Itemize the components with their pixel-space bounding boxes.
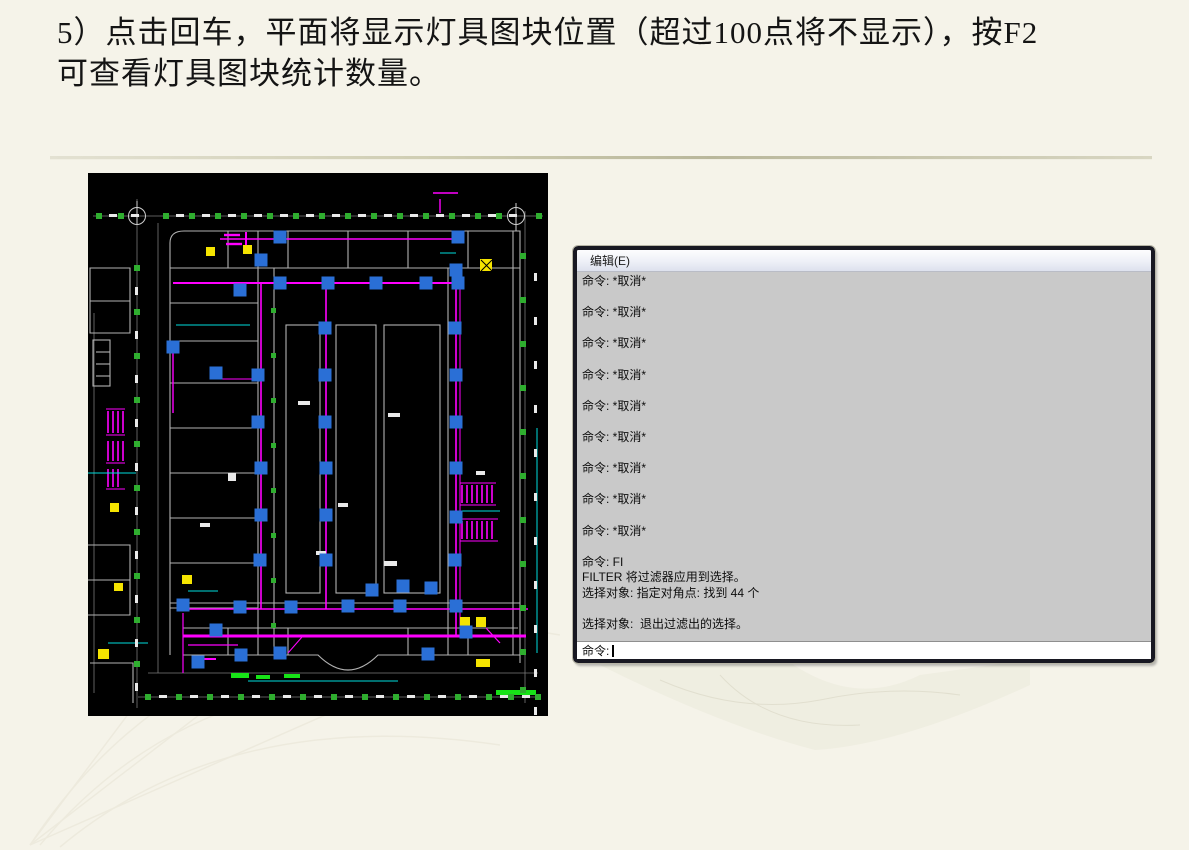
grid-tick bbox=[238, 694, 244, 700]
lamp-block bbox=[192, 656, 205, 669]
grid-tick bbox=[362, 694, 368, 700]
grid-tick bbox=[393, 694, 399, 700]
grid-tick bbox=[475, 213, 481, 219]
grid-dash bbox=[131, 214, 139, 217]
grid-tick bbox=[535, 694, 541, 700]
grid-dash bbox=[534, 361, 537, 369]
grid-tick bbox=[134, 309, 140, 315]
command-history-line: 命令: FI bbox=[582, 555, 1147, 571]
grid-tick bbox=[176, 694, 182, 700]
grid-tick bbox=[269, 694, 275, 700]
lamp-block bbox=[450, 511, 463, 524]
command-history-line: 命令: *取消* bbox=[582, 368, 1147, 384]
lamp-block bbox=[420, 277, 433, 290]
grid-dash bbox=[135, 287, 138, 295]
grid-dash bbox=[135, 551, 138, 559]
lamp-block bbox=[460, 626, 473, 639]
command-history-line: 命令: *取消* bbox=[582, 274, 1147, 290]
grid-dash bbox=[358, 214, 366, 217]
grid-tick bbox=[520, 297, 526, 303]
grid-dash bbox=[345, 695, 353, 698]
grid-dash bbox=[135, 419, 138, 427]
grid-tick bbox=[271, 488, 276, 493]
grid-tick bbox=[241, 213, 247, 219]
grid-dash bbox=[135, 639, 138, 647]
grid-dash bbox=[135, 331, 138, 339]
lamp-block bbox=[177, 599, 190, 612]
command-history-line: 选择对象: 指定对角点: 找到 44 个 bbox=[582, 586, 1147, 602]
grid-tick bbox=[271, 443, 276, 448]
grid-dash bbox=[462, 214, 470, 217]
lamp-block bbox=[394, 600, 407, 613]
grid-dash bbox=[135, 683, 138, 691]
grid-dash bbox=[488, 214, 496, 217]
lamp-block bbox=[322, 277, 335, 290]
grid-tick bbox=[331, 694, 337, 700]
grid-dash bbox=[522, 695, 530, 698]
watermark-map-corner bbox=[600, 655, 1030, 795]
grid-tick bbox=[520, 561, 526, 567]
grid-dash bbox=[509, 214, 517, 217]
grid-dash bbox=[534, 537, 537, 545]
lamp-block bbox=[450, 462, 463, 475]
lamp-block bbox=[450, 600, 463, 613]
grid-dash bbox=[252, 695, 260, 698]
lamp-block bbox=[366, 584, 379, 597]
lamp-block bbox=[397, 580, 410, 593]
command-history-line bbox=[582, 539, 1147, 555]
grid-tick bbox=[145, 694, 151, 700]
grid-tick bbox=[449, 213, 455, 219]
grid-tick bbox=[397, 213, 403, 219]
grid-tick bbox=[134, 573, 140, 579]
command-history-line: 命令: *取消* bbox=[582, 461, 1147, 477]
grid-tick bbox=[424, 694, 430, 700]
grid-tick bbox=[508, 694, 514, 700]
lamp-block bbox=[370, 277, 383, 290]
cad-floor-plan bbox=[88, 173, 548, 716]
grid-tick bbox=[271, 308, 276, 313]
lamp-block bbox=[234, 601, 247, 614]
grid-dash bbox=[534, 317, 537, 325]
grid-dash bbox=[190, 695, 198, 698]
lamp-block bbox=[449, 322, 462, 335]
grid-tick bbox=[134, 529, 140, 535]
grid-tick bbox=[96, 213, 102, 219]
grid-tick bbox=[267, 213, 273, 219]
command-history-line: 命令: *取消* bbox=[582, 336, 1147, 352]
grid-tick bbox=[520, 605, 526, 611]
grid-tick bbox=[163, 213, 169, 219]
grid-tick bbox=[520, 385, 526, 391]
grid-tick bbox=[134, 661, 140, 667]
lamp-block bbox=[320, 554, 333, 567]
lamp-block bbox=[449, 554, 462, 567]
lamp-block bbox=[450, 264, 463, 277]
lamp-block bbox=[452, 277, 465, 290]
grid-tick bbox=[271, 533, 276, 538]
command-history-line bbox=[582, 633, 1147, 641]
grid-dash bbox=[500, 695, 508, 698]
grid-tick bbox=[271, 353, 276, 358]
command-history-line bbox=[582, 383, 1147, 399]
grid-tick bbox=[496, 213, 502, 219]
grid-tick bbox=[345, 213, 351, 219]
grid-dash bbox=[159, 695, 167, 698]
grid-dash bbox=[228, 214, 236, 217]
command-history-line: FILTER 将过滤器应用到选择。 bbox=[582, 570, 1147, 586]
grid-tick bbox=[536, 213, 542, 219]
grid-tick bbox=[520, 341, 526, 347]
command-history-line bbox=[582, 290, 1147, 306]
grid-dash bbox=[314, 695, 322, 698]
command-history-line: 命令: *取消* bbox=[582, 305, 1147, 321]
lamp-block bbox=[319, 322, 332, 335]
lamp-block bbox=[452, 231, 465, 244]
lamp-block bbox=[274, 277, 287, 290]
lamp-block bbox=[274, 647, 287, 660]
lamp-block bbox=[319, 369, 332, 382]
grid-tick bbox=[134, 397, 140, 403]
grid-dash bbox=[280, 214, 288, 217]
autocad-text-window: 编辑(E) 命令: *取消* 命令: *取消* 命令: *取消* 命令: *取消… bbox=[573, 246, 1155, 663]
lamp-block bbox=[450, 416, 463, 429]
lamp-block bbox=[255, 509, 268, 522]
grid-dash bbox=[410, 214, 418, 217]
grid-tick bbox=[118, 213, 124, 219]
lamp-block bbox=[320, 509, 333, 522]
grid-dash bbox=[436, 214, 444, 217]
grid-dash bbox=[534, 669, 537, 677]
slide-title: 5）点击回车，平面将显示灯具图块位置（超过100点将不显示），按F2 可查看灯具… bbox=[57, 12, 1147, 94]
command-history-line: 选择对象: 退出过滤出的选择。 bbox=[582, 617, 1147, 633]
grid-tick bbox=[520, 517, 526, 523]
command-history-line bbox=[582, 321, 1147, 337]
grid-tick bbox=[371, 213, 377, 219]
command-history-line: 命令: *取消* bbox=[582, 430, 1147, 446]
grid-tick bbox=[293, 213, 299, 219]
grid-dash bbox=[202, 214, 210, 217]
lamp-block bbox=[255, 462, 268, 475]
command-history-line bbox=[582, 414, 1147, 430]
grid-tick bbox=[271, 623, 276, 628]
lamp-block bbox=[274, 231, 287, 244]
command-history-line: 命令: *取消* bbox=[582, 399, 1147, 415]
grid-dash bbox=[332, 214, 340, 217]
grid-tick bbox=[189, 213, 195, 219]
grid-dash bbox=[283, 695, 291, 698]
lamp-block bbox=[254, 554, 267, 567]
command-history-line: 命令: *取消* bbox=[582, 492, 1147, 508]
grid-dash bbox=[109, 214, 117, 217]
lamp-block bbox=[255, 254, 268, 267]
lamp-block bbox=[167, 341, 180, 354]
lamp-block bbox=[252, 369, 265, 382]
grid-dash bbox=[135, 463, 138, 471]
lamp-block bbox=[210, 367, 223, 380]
grid-tick bbox=[319, 213, 325, 219]
grid-dash bbox=[384, 214, 392, 217]
command-history-line bbox=[582, 446, 1147, 462]
grid-dash bbox=[469, 695, 477, 698]
grid-tick bbox=[520, 253, 526, 259]
command-prompt: 命令: bbox=[582, 643, 609, 659]
lamp-block bbox=[252, 416, 265, 429]
slide-title-line1: 5）点击回车，平面将显示灯具图块位置（超过100点将不显示），按F2 bbox=[57, 12, 1147, 53]
lamp-block bbox=[425, 582, 438, 595]
grid-tick bbox=[520, 429, 526, 435]
grid-dash bbox=[254, 214, 262, 217]
grid-tick bbox=[520, 473, 526, 479]
grid-dash bbox=[407, 695, 415, 698]
lamp-block bbox=[285, 601, 298, 614]
grid-dash bbox=[176, 214, 184, 217]
divider-line bbox=[50, 156, 1152, 160]
command-input-line[interactable]: 命令: bbox=[577, 641, 1151, 659]
grid-tick bbox=[134, 485, 140, 491]
command-history-line bbox=[582, 352, 1147, 368]
command-history-line bbox=[582, 601, 1147, 617]
lamp-block bbox=[235, 649, 248, 662]
menu-bar: 编辑(E) bbox=[577, 250, 1151, 272]
grid-dash bbox=[135, 375, 138, 383]
command-history-line bbox=[582, 477, 1147, 493]
grid-tick bbox=[134, 353, 140, 359]
grid-dash bbox=[534, 449, 537, 457]
command-history-line bbox=[582, 508, 1147, 524]
grid-tick bbox=[520, 649, 526, 655]
lamp-block bbox=[422, 648, 435, 661]
grid-tick bbox=[271, 398, 276, 403]
slide-title-line2: 可查看灯具图块统计数量。 bbox=[57, 53, 1147, 94]
lamp-block bbox=[319, 416, 332, 429]
grid-tick bbox=[300, 694, 306, 700]
grid-dash bbox=[221, 695, 229, 698]
grid-tick bbox=[134, 265, 140, 271]
grid-tick bbox=[423, 213, 429, 219]
grid-tick bbox=[134, 441, 140, 447]
lamp-block bbox=[342, 600, 355, 613]
grid-dash bbox=[135, 595, 138, 603]
grid-dash bbox=[135, 507, 138, 515]
grid-tick bbox=[486, 694, 492, 700]
grid-dash bbox=[306, 214, 314, 217]
lamp-block bbox=[320, 462, 333, 475]
grid-dash bbox=[534, 707, 537, 715]
grid-dash bbox=[534, 273, 537, 281]
grid-tick bbox=[271, 578, 276, 583]
grid-dash bbox=[534, 581, 537, 589]
grid-dash bbox=[534, 625, 537, 633]
grid-tick bbox=[207, 694, 213, 700]
grid-dash bbox=[438, 695, 446, 698]
lamp-block bbox=[210, 624, 223, 637]
text-cursor bbox=[612, 645, 614, 657]
lamp-block bbox=[234, 284, 247, 297]
command-history: 命令: *取消* 命令: *取消* 命令: *取消* 命令: *取消* 命令: … bbox=[577, 272, 1151, 641]
grid-tick bbox=[215, 213, 221, 219]
command-history-line: 命令: *取消* bbox=[582, 524, 1147, 540]
grid-dash bbox=[534, 493, 537, 501]
grid-tick bbox=[134, 617, 140, 623]
grid-tick bbox=[520, 687, 526, 693]
grid-dash bbox=[376, 695, 384, 698]
lamp-block bbox=[450, 369, 463, 382]
grid-tick bbox=[455, 694, 461, 700]
grid-dash bbox=[534, 405, 537, 413]
menu-edit[interactable]: 编辑(E) bbox=[577, 252, 640, 269]
